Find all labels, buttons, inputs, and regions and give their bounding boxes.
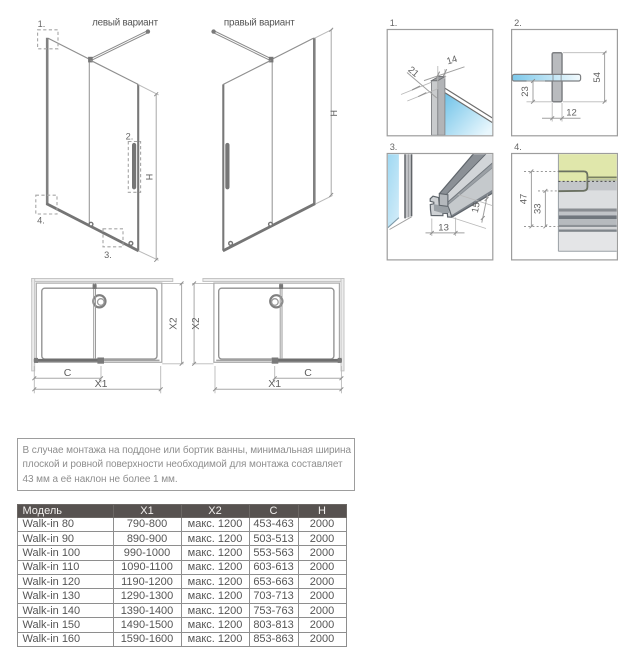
svg-text:C: C bbox=[304, 367, 312, 379]
svg-text:4.: 4. bbox=[37, 216, 45, 226]
svg-text:1.: 1. bbox=[38, 19, 46, 29]
svg-text:33: 33 bbox=[533, 203, 544, 214]
svg-text:X2: X2 bbox=[169, 317, 180, 330]
svg-text:4.: 4. bbox=[514, 142, 522, 152]
svg-text:2.: 2. bbox=[514, 18, 522, 28]
svg-text:15: 15 bbox=[470, 201, 483, 213]
svg-text:2.: 2. bbox=[126, 131, 134, 141]
svg-text:левый вариант: левый вариант bbox=[92, 18, 159, 29]
svg-text:1.: 1. bbox=[390, 18, 398, 28]
svg-text:H: H bbox=[329, 110, 339, 117]
svg-text:13: 13 bbox=[438, 222, 449, 233]
svg-text:правый вариант: правый вариант bbox=[224, 18, 295, 29]
svg-text:54: 54 bbox=[592, 72, 603, 83]
svg-text:47: 47 bbox=[519, 194, 530, 205]
svg-text:X2: X2 bbox=[191, 317, 202, 330]
svg-text:C: C bbox=[64, 367, 72, 379]
svg-text:X1: X1 bbox=[95, 378, 108, 390]
svg-text:23: 23 bbox=[520, 86, 531, 97]
svg-text:12: 12 bbox=[566, 107, 577, 118]
svg-text:3.: 3. bbox=[104, 250, 112, 260]
svg-text:H: H bbox=[145, 174, 155, 181]
svg-text:X1: X1 bbox=[268, 378, 281, 390]
svg-text:3.: 3. bbox=[390, 142, 398, 152]
